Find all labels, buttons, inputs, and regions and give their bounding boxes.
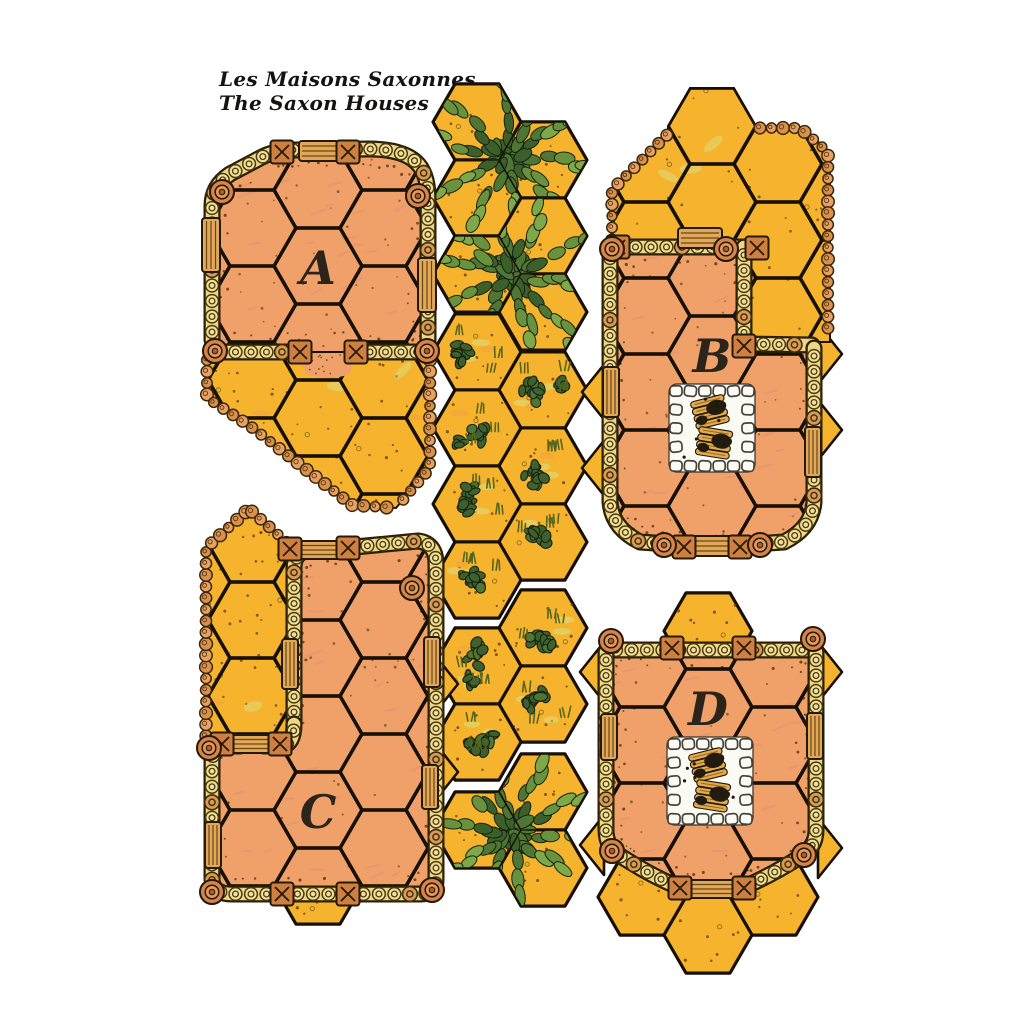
house-label-a: A	[296, 241, 336, 295]
fire-pit	[667, 737, 753, 825]
fire-pit	[669, 384, 755, 472]
punchboard-sheet: Les Maisons Saxonnes The Saxon Houses AB…	[0, 0, 1024, 1024]
sheet-title-french: Les Maisons Saxonnes	[218, 67, 476, 91]
house-label-d: D	[686, 682, 728, 736]
house-label-b: B	[691, 329, 732, 383]
sheet-title-english: The Saxon Houses	[219, 91, 429, 115]
house-label-c: C	[300, 785, 337, 839]
terrain-tile-brush[interactable]	[433, 314, 587, 618]
